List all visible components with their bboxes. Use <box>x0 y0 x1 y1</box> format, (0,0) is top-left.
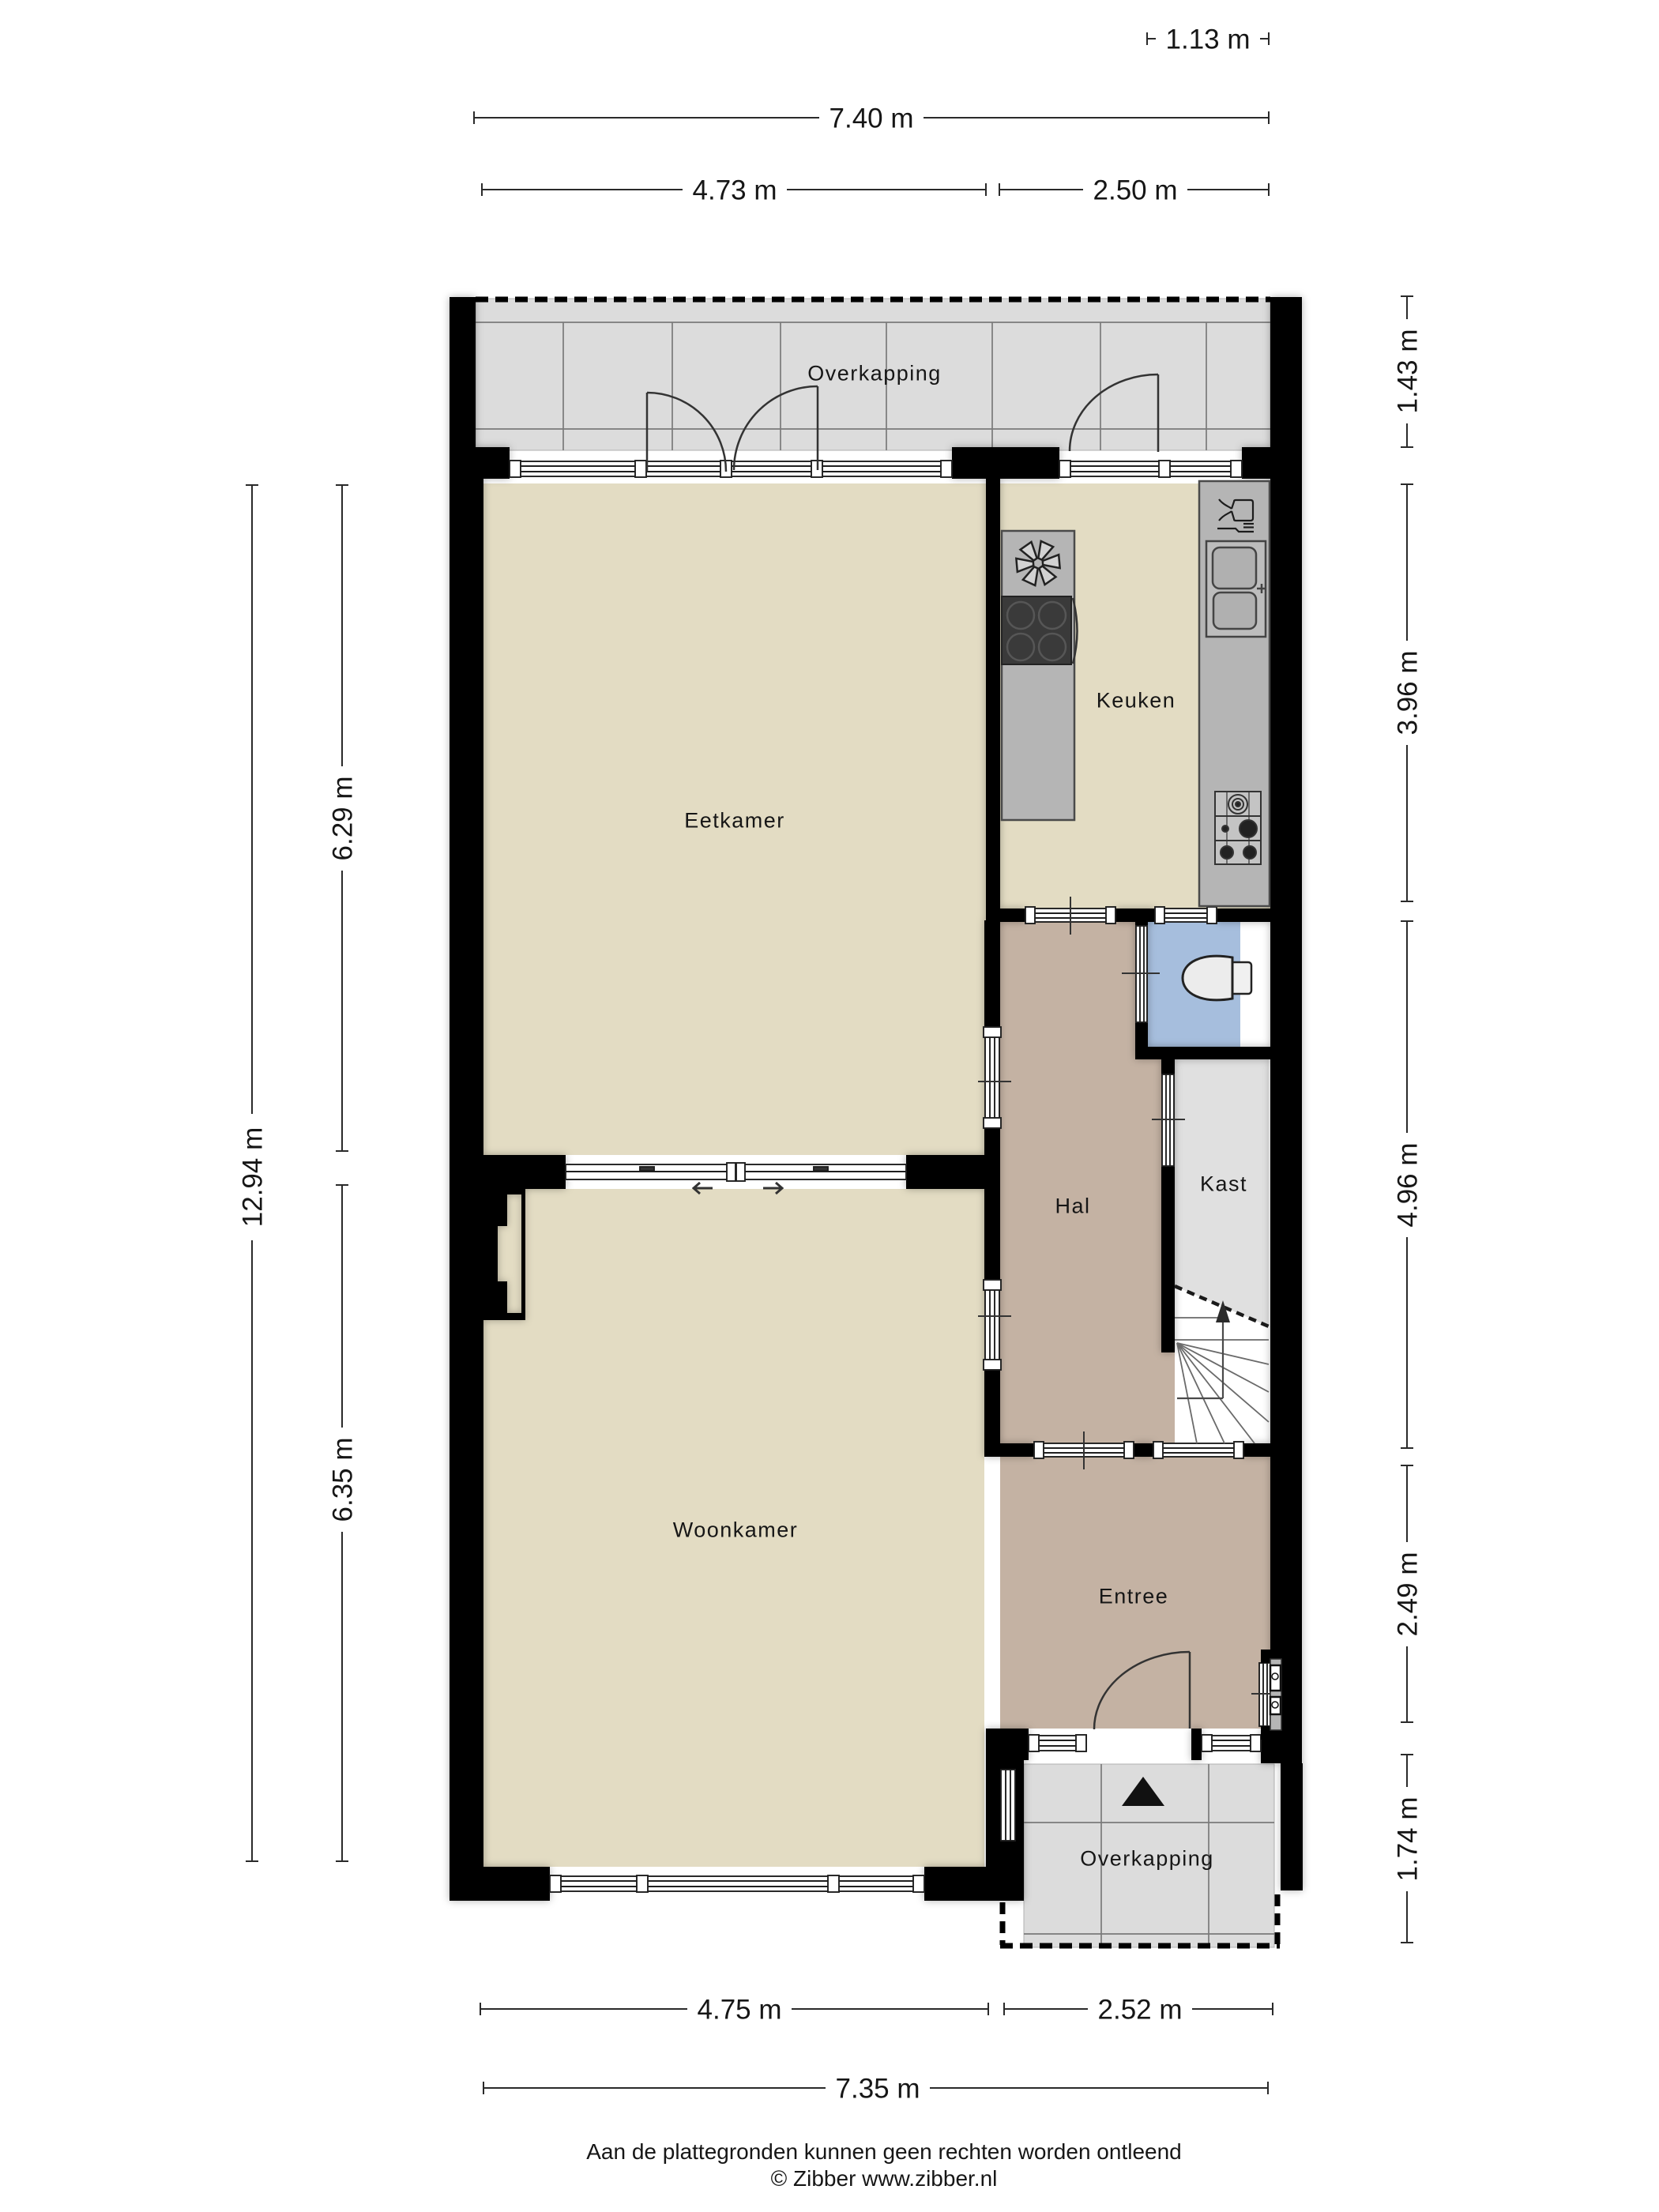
svg-text:Woonkamer: Woonkamer <box>673 1518 799 1541</box>
svg-text:1.13 m: 1.13 m <box>1166 24 1251 55</box>
svg-text:1.74 m: 1.74 m <box>1392 1797 1423 1882</box>
svg-text:2.52 m: 2.52 m <box>1098 1994 1183 2025</box>
svg-text:© Zibber www.zibber.nl: © Zibber www.zibber.nl <box>771 2166 998 2191</box>
svg-text:Keuken: Keuken <box>1097 688 1176 712</box>
svg-text:Aan de plattegronden kunnen ge: Aan de plattegronden kunnen geen rechten… <box>586 2139 1181 2164</box>
svg-text:Overkapping: Overkapping <box>1080 1846 1214 1870</box>
svg-text:7.35 m: 7.35 m <box>836 2073 920 2104</box>
svg-text:2.50 m: 2.50 m <box>1093 175 1178 205</box>
svg-text:Entree: Entree <box>1099 1584 1169 1608</box>
svg-text:4.73 m: 4.73 m <box>693 175 777 205</box>
svg-text:4.96 m: 4.96 m <box>1392 1143 1423 1228</box>
svg-text:4.75 m: 4.75 m <box>698 1994 782 2025</box>
svg-text:Overkapping: Overkapping <box>807 361 942 385</box>
svg-text:7.40 m: 7.40 m <box>829 103 914 134</box>
svg-text:Eetkamer: Eetkamer <box>684 808 785 832</box>
svg-text:Kast: Kast <box>1200 1172 1247 1195</box>
svg-text:6.29 m: 6.29 m <box>327 777 358 861</box>
svg-text:1.43 m: 1.43 m <box>1392 329 1423 414</box>
svg-text:6.35 m: 6.35 m <box>327 1438 358 1522</box>
svg-text:Hal: Hal <box>1055 1194 1090 1217</box>
svg-text:2.49 m: 2.49 m <box>1392 1552 1423 1637</box>
svg-text:12.94 m: 12.94 m <box>237 1127 268 1227</box>
svg-text:3.96 m: 3.96 m <box>1392 651 1423 735</box>
